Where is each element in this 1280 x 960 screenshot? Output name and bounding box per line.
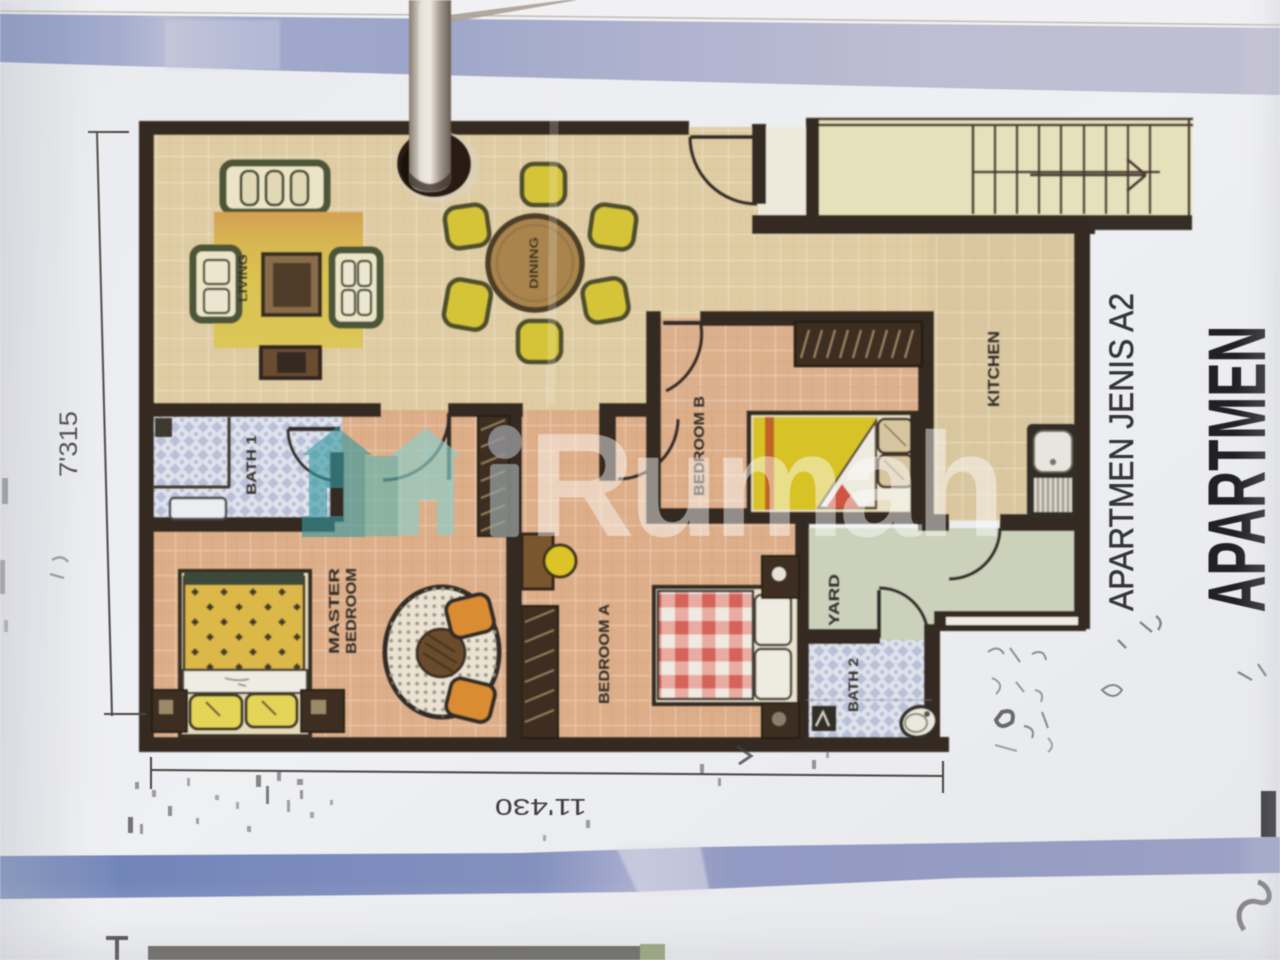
- svg-text:DINING: DINING: [527, 237, 541, 289]
- svg-text:MASTER: MASTER: [327, 567, 343, 654]
- svg-text:11'430: 11'430: [495, 794, 587, 820]
- svg-text:YARD: YARD: [827, 574, 843, 626]
- svg-text:KITCHEN: KITCHEN: [986, 331, 1003, 407]
- svg-text:Rumah: Rumah: [528, 403, 1000, 568]
- svg-text:BEDROOM: BEDROOM: [344, 568, 360, 654]
- svg-text:LIVING: LIVING: [238, 254, 250, 302]
- svg-text:BATH 1: BATH 1: [243, 435, 259, 495]
- svg-text:APARTMEN JENIS A2: APARTMEN JENIS A2: [1103, 293, 1141, 611]
- svg-text:BEDROOM A: BEDROOM A: [597, 603, 613, 704]
- svg-text:BATH 2: BATH 2: [845, 658, 861, 712]
